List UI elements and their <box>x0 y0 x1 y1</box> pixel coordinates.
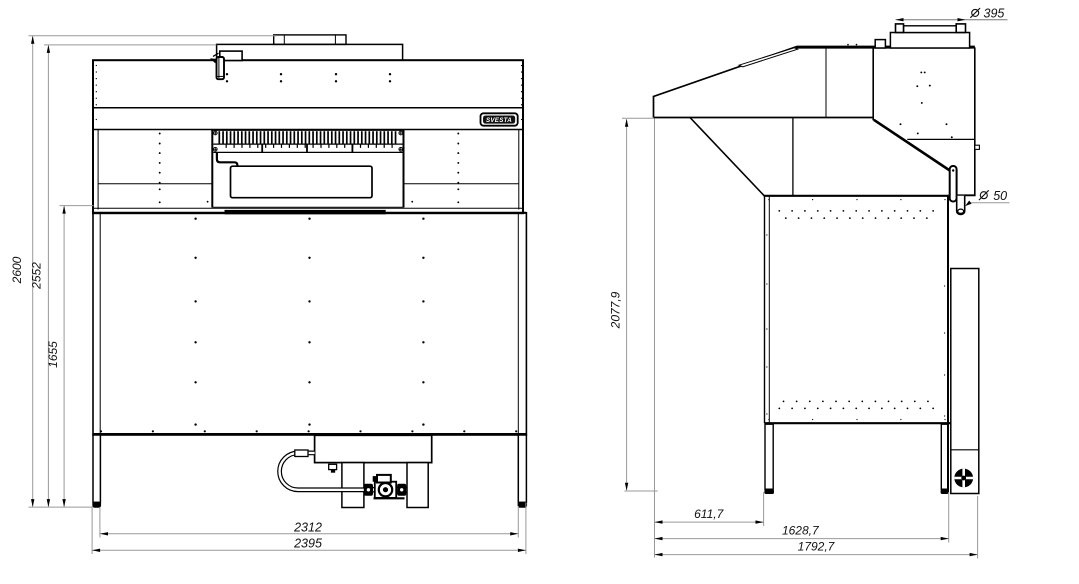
svg-text:2077,9: 2077,9 <box>609 291 623 329</box>
svg-text:SVESTA: SVESTA <box>486 117 512 124</box>
svg-text:395: 395 <box>984 7 1005 21</box>
svg-text:611,7: 611,7 <box>694 507 724 521</box>
svg-text:2395: 2395 <box>293 537 322 551</box>
svg-text:1655: 1655 <box>46 341 60 368</box>
svg-text:1628,7: 1628,7 <box>782 524 820 538</box>
svg-text:2312: 2312 <box>293 520 322 534</box>
svg-text:50: 50 <box>993 189 1007 203</box>
svg-text:2600: 2600 <box>10 256 24 284</box>
svg-text:2552: 2552 <box>30 262 44 290</box>
svg-text:1792,7: 1792,7 <box>798 540 836 554</box>
